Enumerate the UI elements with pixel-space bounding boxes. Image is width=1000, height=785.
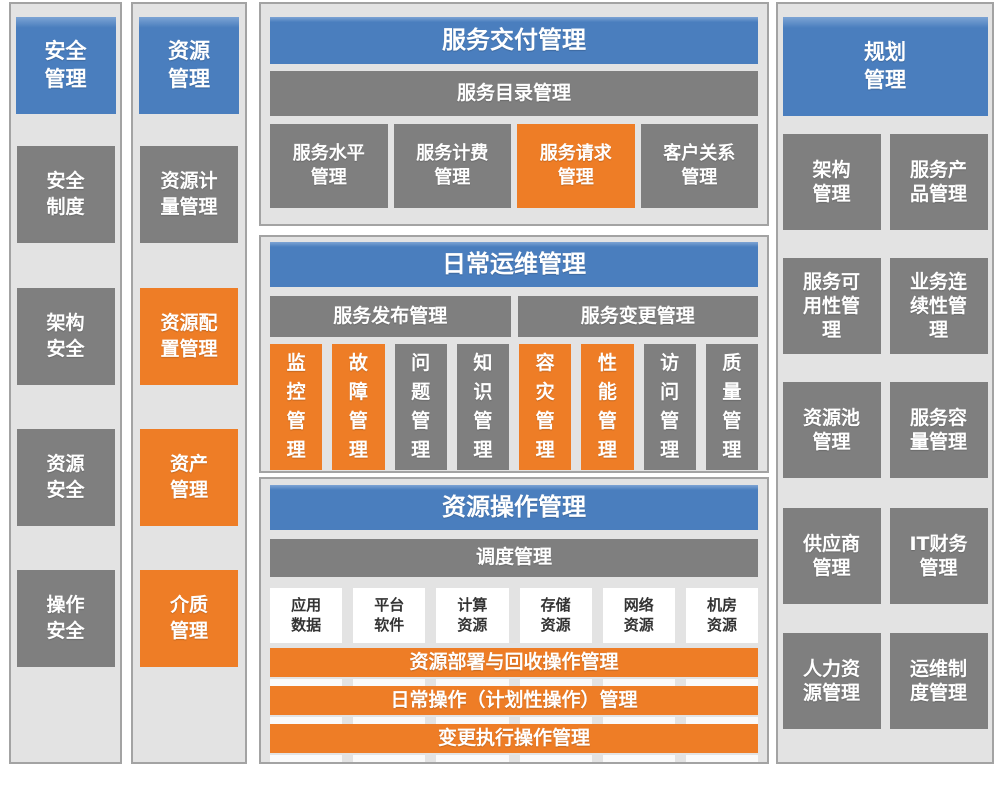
box-resource-configuration: 资源配 置管理 — [140, 288, 238, 385]
box-it-finance: IT财务 管理 — [890, 508, 988, 604]
resource-types-row: 应用 数据 平台 软件 计算 资源 存储 资源 网络 资源 机房 资源 — [270, 588, 758, 643]
table-divider-segment — [436, 755, 508, 762]
planning-row: 资源池 管理 服务容 量管理 — [783, 382, 988, 478]
box-disaster-recovery: 容 灾 管 理 — [519, 344, 571, 470]
box-service-request: 服务请求 管理 — [517, 124, 635, 208]
box-compute-resource: 计算 资源 — [436, 588, 508, 643]
bar-service-change: 服务变更管理 — [518, 296, 759, 337]
table-divider-segment — [270, 755, 342, 762]
box-service-billing: 服务计费 管理 — [394, 124, 512, 208]
table-divider-segment — [270, 717, 342, 724]
box-service-capacity: 服务容 量管理 — [890, 382, 988, 478]
box-customer-relation: 客户关系 管理 — [641, 124, 759, 208]
scheduling-bar: 调度管理 — [270, 539, 758, 577]
box-access: 访 问 管 理 — [644, 344, 696, 470]
table-divider-segment — [353, 755, 425, 762]
box-service-product-management: 服务产 品管理 — [890, 134, 988, 230]
resource-column-header: 资源 管理 — [139, 17, 239, 114]
box-architecture-security: 架构 安全 — [17, 288, 115, 385]
table-divider-segment — [520, 679, 592, 686]
box-platform-software: 平台 软件 — [353, 588, 425, 643]
box-security-policy: 安全 制度 — [17, 146, 115, 243]
table-divider-segment — [603, 679, 675, 686]
table-divider-segment — [270, 679, 342, 686]
bar-service-release: 服务发布管理 — [270, 296, 511, 337]
box-incident: 故 障 管 理 — [332, 344, 384, 470]
box-performance: 性 能 管 理 — [581, 344, 633, 470]
table-divider-segment — [353, 717, 425, 724]
bar-change-execution-ops: 变更执行操作管理 — [270, 724, 758, 753]
table-divider-segment — [686, 717, 758, 724]
box-datacenter-resource: 机房 资源 — [686, 588, 758, 643]
box-media-management: 介质 管理 — [140, 570, 238, 667]
table-divider-segment — [520, 755, 592, 762]
box-resource-pool: 资源池 管理 — [783, 382, 881, 478]
table-divider-segment — [436, 717, 508, 724]
table-divider-segment — [353, 679, 425, 686]
box-knowledge: 知 识 管 理 — [457, 344, 509, 470]
resource-operations-panel: 资源操作管理 调度管理 应用 数据 平台 软件 计算 资源 存储 资源 网络 资… — [259, 477, 769, 764]
planning-row: 人力资 源管理 运维制 度管理 — [783, 633, 988, 729]
table-divider-segment — [603, 755, 675, 762]
daily-operations-panel: 日常运维管理 服务发布管理 服务变更管理 监 控 管 理 故 障 管 理 问 题… — [259, 235, 769, 473]
planning-management-column: 规划 管理 架构 管理 服务产 品管理 服务可 用性管 理 业务连 续性管 理 … — [776, 2, 994, 764]
box-operation-security: 操作 安全 — [17, 570, 115, 667]
security-management-column: 安全 管理 安全 制度 架构 安全 资源 安全 操作 安全 — [9, 2, 122, 764]
box-supplier-management: 供应商 管理 — [783, 508, 881, 604]
planning-row: 供应商 管理 IT财务 管理 — [783, 508, 988, 604]
box-problem: 问 题 管 理 — [395, 344, 447, 470]
box-service-availability: 服务可 用性管 理 — [783, 258, 881, 354]
box-resource-metering: 资源计 量管理 — [140, 146, 238, 243]
box-business-continuity: 业务连 续性管 理 — [890, 258, 988, 354]
security-column-header: 安全 管理 — [16, 17, 116, 114]
service-delivery-panel: 服务交付管理 服务目录管理 服务水平 管理 服务计费 管理 服务请求 管理 客户… — [259, 2, 769, 226]
table-divider-segment — [686, 679, 758, 686]
box-storage-resource: 存储 资源 — [520, 588, 592, 643]
daily-operations-title: 日常运维管理 — [270, 242, 758, 287]
box-ops-policy: 运维制 度管理 — [890, 633, 988, 729]
table-divider-segment — [603, 717, 675, 724]
bar-daily-planned-ops: 日常操作（计划性操作）管理 — [270, 686, 758, 715]
box-resource-security: 资源 安全 — [17, 429, 115, 526]
box-network-resource: 网络 资源 — [603, 588, 675, 643]
planning-row: 服务可 用性管 理 业务连 续性管 理 — [783, 258, 988, 354]
table-divider — [270, 755, 758, 762]
table-divider — [270, 679, 758, 686]
service-delivery-row: 服务水平 管理 服务计费 管理 服务请求 管理 客户关系 管理 — [270, 124, 758, 208]
box-asset-management: 资产 管理 — [140, 429, 238, 526]
resource-operations-title: 资源操作管理 — [270, 485, 758, 530]
service-delivery-title: 服务交付管理 — [270, 17, 758, 64]
planning-column-header: 规划 管理 — [783, 17, 988, 116]
planning-row: 架构 管理 服务产 品管理 — [783, 134, 988, 230]
service-catalog-bar: 服务目录管理 — [270, 71, 758, 116]
box-service-level: 服务水平 管理 — [270, 124, 388, 208]
box-quality: 质 量 管 理 — [706, 344, 758, 470]
resource-management-column: 资源 管理 资源计 量管理 资源配 置管理 资产 管理 介质 管理 — [131, 2, 247, 764]
table-divider-segment — [436, 679, 508, 686]
box-monitoring: 监 控 管 理 — [270, 344, 322, 470]
daily-operations-groups: 服务发布管理 服务变更管理 — [270, 296, 758, 337]
daily-operations-row: 监 控 管 理 故 障 管 理 问 题 管 理 知 识 管 理 容 灾 管 理 … — [270, 344, 758, 470]
table-divider — [270, 717, 758, 724]
box-application-data: 应用 数据 — [270, 588, 342, 643]
box-architecture-management: 架构 管理 — [783, 134, 881, 230]
box-human-resource: 人力资 源管理 — [783, 633, 881, 729]
table-divider-segment — [520, 717, 592, 724]
bar-deploy-reclaim-ops: 资源部署与回收操作管理 — [270, 648, 758, 677]
table-divider-segment — [686, 755, 758, 762]
